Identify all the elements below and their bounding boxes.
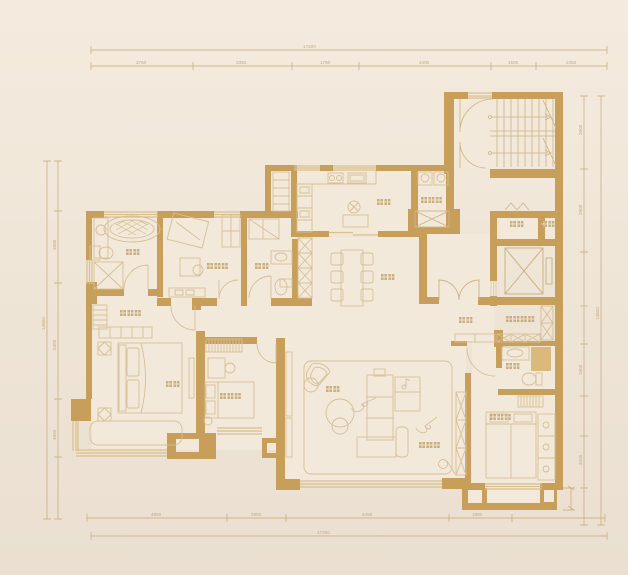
svg-text:3750: 3750 [136, 60, 147, 65]
svg-text:14600: 14600 [595, 307, 600, 320]
svg-text:3350: 3350 [236, 60, 247, 65]
svg-text:2900: 2900 [578, 204, 583, 215]
svg-text:5300: 5300 [52, 339, 57, 350]
svg-text:1500: 1500 [508, 60, 519, 65]
svg-text:1800: 1800 [578, 364, 583, 375]
svg-text:4850: 4850 [151, 512, 162, 517]
svg-text:2450: 2450 [566, 60, 577, 65]
svg-text:1900: 1900 [472, 512, 483, 517]
svg-text:2950: 2950 [251, 512, 262, 517]
svg-text:13600: 13600 [41, 317, 46, 330]
svg-text:4450: 4450 [362, 512, 373, 517]
svg-text:4400: 4400 [419, 60, 430, 65]
svg-text:17200: 17200 [303, 44, 316, 49]
svg-text:3900: 3900 [52, 239, 57, 250]
svg-text:2600: 2600 [578, 124, 583, 135]
svg-text:17200: 17200 [317, 530, 330, 535]
svg-text:4900: 4900 [52, 429, 57, 440]
svg-text:1750: 1750 [320, 60, 331, 65]
svg-text:3200: 3200 [578, 454, 583, 465]
